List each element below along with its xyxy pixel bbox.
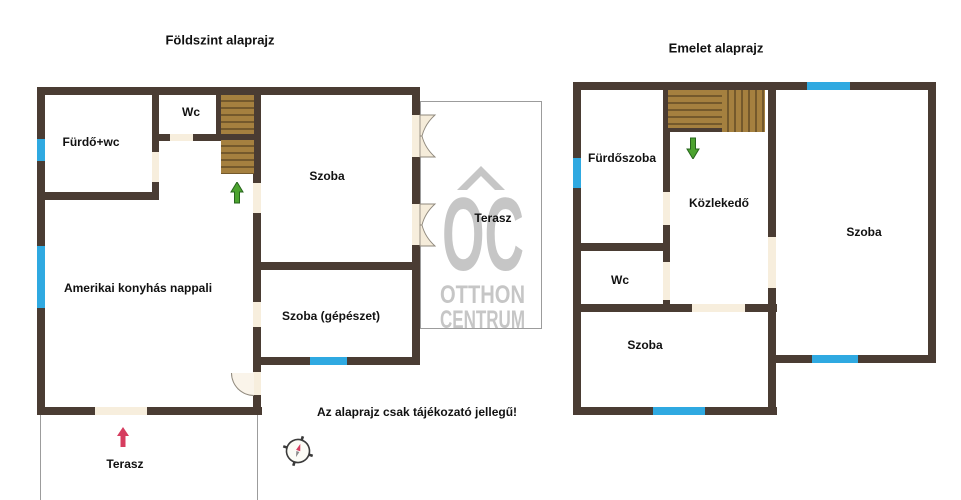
window-marker bbox=[807, 82, 850, 90]
window-marker bbox=[37, 246, 45, 308]
door-opening bbox=[692, 304, 745, 312]
window-marker bbox=[573, 158, 581, 188]
room-label-bathroom: Fürdőszoba bbox=[588, 151, 656, 165]
compass-rose-icon bbox=[281, 434, 315, 468]
window-marker bbox=[310, 357, 347, 365]
room-label-bathroom: Fürdő+wc bbox=[62, 135, 119, 149]
terrace-edge-line-right bbox=[257, 415, 258, 500]
stairs-flight-lower bbox=[221, 140, 254, 174]
stairs-flight-upper bbox=[221, 95, 254, 134]
upper-floor-title: Emelet alaprajz bbox=[669, 41, 764, 56]
door-opening bbox=[95, 407, 147, 415]
room-label-terrace-side: Terasz bbox=[474, 211, 511, 225]
door-opening bbox=[170, 134, 193, 141]
terrace-edge-line-left bbox=[40, 415, 41, 500]
wall-segment bbox=[152, 95, 159, 200]
room-label-living-room: Amerikai konyhás nappali bbox=[64, 281, 212, 295]
window-marker bbox=[653, 407, 705, 415]
room-label-bedroom-left: Szoba bbox=[627, 338, 662, 352]
room-label-bedroom: Szoba bbox=[309, 169, 344, 183]
door-opening bbox=[663, 262, 670, 300]
wall-segment bbox=[253, 262, 420, 270]
wall-segment bbox=[45, 192, 159, 200]
stairs-flight-lower bbox=[722, 90, 765, 132]
ground-floor-title: Földszint alaprajz bbox=[165, 33, 274, 48]
wall-segment bbox=[575, 243, 670, 251]
door-opening bbox=[663, 192, 670, 225]
french-door bbox=[412, 202, 438, 248]
window-marker bbox=[37, 139, 45, 161]
door-swing bbox=[231, 373, 254, 396]
door-opening bbox=[253, 372, 261, 395]
entrance-arrow-icon bbox=[116, 427, 130, 448]
wall-segment bbox=[928, 82, 936, 363]
door-opening bbox=[253, 183, 261, 213]
wall-segment bbox=[573, 82, 936, 90]
room-label-wc: Wc bbox=[611, 273, 629, 287]
room-label-wc: Wc bbox=[182, 105, 200, 119]
wall-segment bbox=[253, 95, 261, 415]
door-opening bbox=[768, 237, 776, 288]
french-door bbox=[412, 113, 438, 159]
wall-segment bbox=[37, 407, 262, 415]
room-label-bedroom-right: Szoba bbox=[846, 225, 881, 239]
disclaimer-text: Az alaprajz csak tájékozató jellegű! bbox=[317, 405, 517, 419]
wall-segment bbox=[37, 87, 420, 95]
door-opening bbox=[253, 302, 261, 327]
wall-segment bbox=[575, 304, 777, 312]
stair-direction-arrow-down-icon bbox=[686, 137, 700, 159]
room-label-terrace-front: Terasz bbox=[106, 457, 143, 471]
room-label-mechanical-room: Szoba (gépészet) bbox=[282, 309, 380, 323]
floor-plan-canvas: OC OTTHON CENTRUM Földszint alaprajz Eme… bbox=[0, 0, 961, 500]
window-marker bbox=[812, 355, 858, 363]
room-label-hallway: Közlekedő bbox=[689, 196, 749, 210]
stairs-flight-upper bbox=[668, 90, 722, 132]
door-opening bbox=[152, 152, 159, 182]
stair-direction-arrow-up-icon bbox=[230, 182, 244, 204]
